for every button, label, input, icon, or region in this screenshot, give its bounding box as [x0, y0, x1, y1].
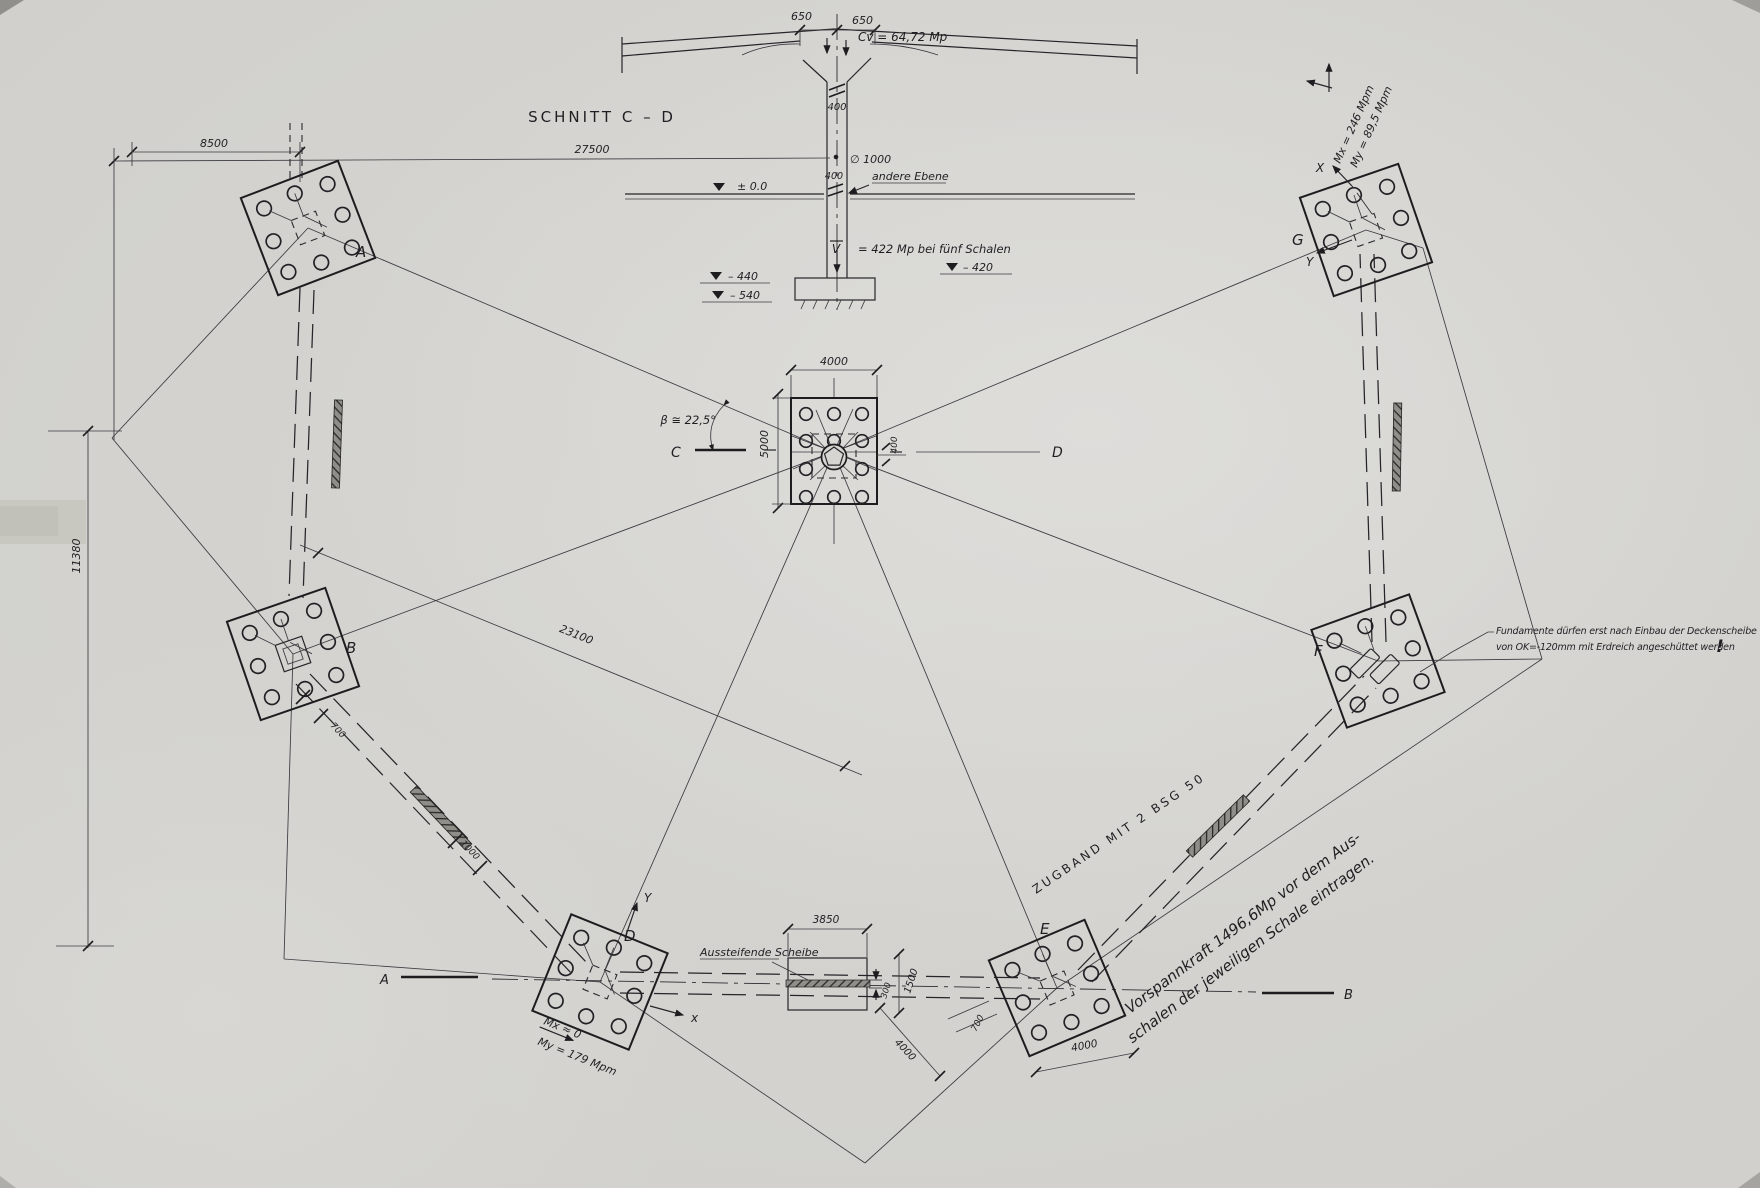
footing-label-f: F	[1314, 642, 1323, 660]
dim-8500: 8500	[200, 137, 228, 150]
dim-11380: 11380	[70, 539, 83, 574]
foundation-plan-drawing: SCHNITT C – D	[0, 0, 1760, 1188]
dim-8500-group: 8500	[127, 137, 305, 182]
dim-1000-group: 1000	[448, 834, 487, 875]
dim-5000-center: 5000	[758, 430, 771, 458]
zugband-label: ZUGBAND MIT 2 BSG 50	[1030, 770, 1208, 896]
level-m540: – 540	[730, 289, 760, 302]
v-label: V	[832, 242, 841, 256]
cut-label-c: C	[671, 445, 681, 461]
dim-4000-e-group: 4000	[1031, 1038, 1139, 1077]
plan-view: 4000 5000 400 β ≅ 22,5° C D	[48, 64, 1757, 1163]
dim-700-b-group: 700	[296, 690, 347, 741]
andere-ebene-group: andere Ebene 400	[825, 170, 949, 196]
dim-700-b: 700	[328, 721, 347, 741]
footing-label-a: A	[355, 243, 366, 261]
axis-g-x: X	[1315, 161, 1325, 175]
section-view: SCHNITT C – D	[109, 10, 1137, 440]
axis-g-y: Y	[1306, 255, 1315, 269]
axis-d-y: Y	[644, 891, 653, 905]
footing-block-section	[795, 278, 875, 300]
dim-27500-group: 27500 ∅ 1000	[109, 143, 891, 440]
cut-label-a: A	[379, 973, 389, 988]
dim-27500: 27500	[575, 143, 610, 156]
note-line1: Fundamente dürfen erst nach Einbau der D…	[1496, 626, 1757, 637]
footing-hatch-ticks	[801, 300, 865, 309]
dia-1000: ∅ 1000	[850, 153, 891, 166]
section-title: SCHNITT C – D	[528, 108, 676, 126]
dim-1500: 1500	[902, 967, 920, 995]
cut-label-d: D	[1052, 445, 1063, 461]
dim-400-center: 400	[890, 436, 900, 453]
note-line2: von OK=-120mm mit Erdreich angeschüttet …	[1496, 642, 1735, 653]
drawing-sheet: SCHNITT C – D	[0, 0, 1760, 1188]
polygon-edges	[112, 228, 1542, 1163]
axis-d-x: x	[690, 1011, 699, 1025]
load-cv-group: Cv = 64,72 Mp	[827, 30, 948, 55]
center-dims: 4000 5000 400 β ≅ 22,5°	[659, 355, 906, 513]
dim-4000-diag: 4000	[892, 1037, 918, 1063]
dim-23100: 23100	[558, 622, 595, 647]
dim-700-e-group: 700	[948, 1001, 997, 1033]
dim-700-e: 700	[970, 1013, 987, 1033]
radial-spokes	[293, 228, 1378, 988]
prestress-bars	[331, 400, 1401, 857]
zugband-label-group: ZUGBAND MIT 2 BSG 50	[1030, 770, 1208, 896]
foundation-note-group: Fundamente dürfen erst nach Einbau der D…	[1420, 626, 1757, 672]
dim-400-upper: 400	[827, 102, 846, 113]
angle-beta: β ≅ 22,5°	[659, 413, 716, 427]
vorspann-line2: schalen der jeweiligen Schale eintragen.	[1124, 849, 1378, 1047]
level-m440: – 440	[728, 270, 758, 283]
dim-4000-e: 4000	[1070, 1038, 1099, 1055]
dim-650-left: 650	[791, 10, 812, 23]
footing-label-g: G	[1292, 231, 1304, 249]
levels-group: – 420 – 440 – 540	[700, 261, 1012, 302]
note-bang: !	[1716, 637, 1724, 657]
v-load-group: V = 422 Mp bei fünf Schalen	[830, 241, 1011, 256]
dim-650-right: 650	[852, 14, 873, 27]
footing-label-e: E	[1040, 920, 1050, 938]
level-m420: – 420	[963, 261, 993, 274]
level-zero: ± 0.0	[737, 180, 767, 193]
dim-1000: 1000	[458, 839, 481, 863]
vorspann-line1: Vorspannkraft 1496,6Mp vor dem Aus-	[1122, 828, 1364, 1017]
footing-label-b: B	[346, 639, 356, 657]
dim-4000-center: 4000	[820, 355, 848, 368]
moments-g: Mx = 246 Mpm My = 89,5 Mpm	[1331, 77, 1395, 172]
scheibe-label: Aussteifende Scheibe	[699, 946, 819, 959]
cut-line-cd: C D	[671, 445, 1063, 461]
axes-d: Y x	[625, 891, 699, 1025]
dim-300: 300	[879, 981, 894, 1000]
cut-label-b: B	[1344, 988, 1353, 1003]
dim-400-lower: 400	[825, 171, 843, 182]
footing-center	[791, 378, 877, 544]
load-cv-label: Cv = 64,72 Mp	[858, 30, 948, 44]
dim-3850: 3850	[813, 914, 840, 926]
andere-ebene-label: andere Ebene	[872, 170, 949, 183]
v-value: = 422 Mp bei fünf Schalen	[858, 242, 1011, 256]
